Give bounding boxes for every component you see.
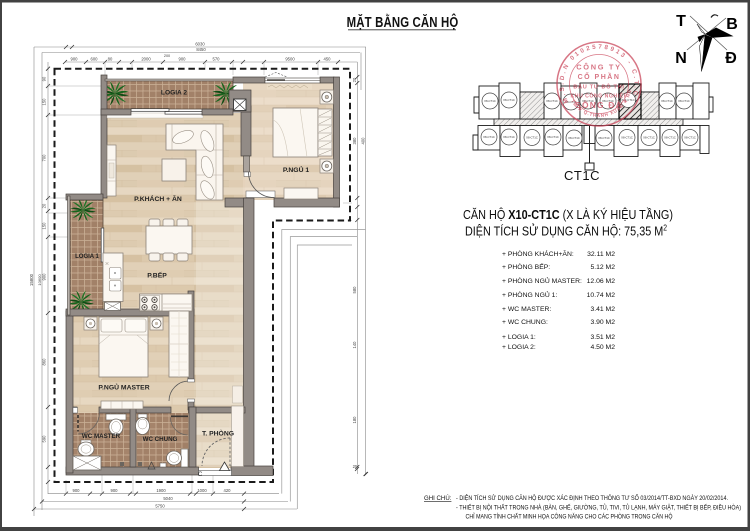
svg-text:P.NGỦ MASTER: P.NGỦ MASTER — [98, 383, 149, 392]
svg-text:X8-CT1C: X8-CT1C — [598, 136, 610, 140]
svg-text:900: 900 — [71, 57, 79, 62]
svg-text:380: 380 — [352, 137, 357, 145]
svg-text:X8-CT1C: X8-CT1C — [503, 135, 515, 139]
svg-text:- DIỆN TÍCH SỬ DỤNG CĂN HỘ ĐƯỢ: - DIỆN TÍCH SỬ DỤNG CĂN HỘ ĐƯỢC XÁC ĐỊNH… — [456, 494, 728, 502]
svg-text:8450: 8450 — [196, 47, 206, 52]
svg-text:ĐẦU TƯ ĐÔ THỊ: ĐẦU TƯ ĐÔ THỊ — [573, 83, 624, 91]
svg-text:450: 450 — [324, 57, 332, 62]
svg-text:2000: 2000 — [141, 57, 151, 62]
svg-text:P.KHÁCH + ĂN: P.KHÁCH + ĂN — [134, 194, 182, 203]
svg-text:X8-CT1C: X8-CT1C — [664, 136, 676, 140]
svg-text:900: 900 — [42, 273, 47, 281]
svg-text:T: T — [676, 13, 686, 30]
svg-text:GHI CHÚ:: GHI CHÚ: — [424, 495, 452, 502]
svg-text:P.NGỦ 1: P.NGỦ 1 — [283, 165, 310, 174]
svg-text:X8-CT1C: X8-CT1C — [684, 136, 696, 140]
svg-text:1900: 1900 — [156, 488, 166, 493]
svg-text:T. PHÒNG: T. PHÒNG — [202, 429, 234, 438]
svg-text:10.74 M2: 10.74 M2 — [587, 292, 616, 299]
svg-text:25: 25 — [353, 464, 358, 469]
svg-text:CĂN HỘ X10-CT1C (X LÀ KÝ HIỆU: CĂN HỘ X10-CT1C (X LÀ KÝ HIỆU TẦNG) — [463, 207, 673, 222]
svg-text:860: 860 — [42, 358, 47, 366]
svg-text:CHỈ MANG TÍNH CHẤT MINH HỌA CÔ: CHỈ MANG TÍNH CHẤT MINH HỌA CÔNG NĂNG CH… — [466, 514, 673, 521]
svg-text:3.51 M2: 3.51 M2 — [590, 334, 615, 341]
svg-text:X8-CT1C: X8-CT1C — [503, 98, 515, 102]
svg-text:WC MASTER: WC MASTER — [82, 433, 121, 440]
svg-text:B: B — [726, 16, 738, 33]
svg-text:900: 900 — [179, 57, 187, 62]
svg-text:LOGIA 1: LOGIA 1 — [75, 254, 99, 260]
svg-text:CÔNG TY: CÔNG TY — [576, 63, 622, 72]
svg-text:KHU CÔNG NGHIỆP: KHU CÔNG NGHIỆP — [570, 92, 627, 100]
svg-text:570: 570 — [213, 57, 221, 62]
svg-text:WC CHUNG: WC CHUNG — [143, 436, 178, 443]
svg-text:3.90 M2: 3.90 M2 — [590, 319, 615, 326]
svg-text:400: 400 — [361, 137, 366, 145]
svg-text:X8-CT1C: X8-CT1C — [484, 99, 496, 103]
svg-text:+ LOGIA 2:: + LOGIA 2: — [502, 344, 536, 351]
svg-text:DIỆN TÍCH SỬ DỤNG CĂN HỘ: 75,3: DIỆN TÍCH SỬ DỤNG CĂN HỘ: 75,35 M2 — [465, 224, 667, 239]
svg-text:X8-CT1C: X8-CT1C — [546, 99, 558, 103]
svg-text:10600: 10600 — [37, 274, 42, 286]
svg-text:900: 900 — [111, 488, 119, 493]
svg-text:5750: 5750 — [155, 504, 165, 509]
svg-text:LOGIA 2: LOGIA 2 — [161, 90, 187, 97]
svg-text:600: 600 — [91, 57, 99, 62]
svg-text:X8-CT1C: X8-CT1C — [621, 136, 633, 140]
svg-text:32.11 M2: 32.11 M2 — [587, 251, 615, 258]
svg-text:C: C — [198, 472, 203, 478]
svg-text:X8-CT1C: X8-CT1C — [643, 136, 655, 140]
svg-text:150: 150 — [42, 222, 47, 230]
svg-text:420: 420 — [224, 488, 232, 493]
svg-text:- THIẾT BỊ NỘI THẤT TRONG NHÀ: - THIẾT BỊ NỘI THẤT TRONG NHÀ (BÀN, GHẾ,… — [456, 505, 741, 512]
svg-text:80: 80 — [108, 57, 113, 62]
svg-text:+ LOGIA 1:: + LOGIA 1: — [502, 334, 536, 341]
svg-text:N: N — [675, 50, 687, 67]
svg-text:590: 590 — [42, 435, 47, 443]
svg-text:580: 580 — [352, 286, 357, 294]
svg-text:CT1C: CT1C — [564, 168, 600, 183]
svg-text:+ PHÒNG NGỦ 1:: + PHÒNG NGỦ 1: — [502, 290, 557, 299]
svg-text:90: 90 — [42, 76, 47, 81]
svg-text:X8-CT1C: X8-CT1C — [661, 99, 673, 103]
svg-text:X8-CT1C: X8-CT1C — [483, 135, 495, 139]
svg-text:180: 180 — [352, 416, 357, 424]
svg-text:Đ: Đ — [725, 50, 737, 67]
svg-text:MẶT BẰNG CĂN HỘ: MẶT BẰNG CĂN HỘ — [347, 13, 459, 30]
svg-text:SÔNG ĐÀ: SÔNG ĐÀ — [575, 99, 623, 110]
svg-text:700: 700 — [42, 154, 47, 162]
svg-text:9500: 9500 — [285, 57, 295, 62]
svg-text:12.06 M2: 12.06 M2 — [587, 278, 616, 285]
svg-text:+ PHÒNG KHÁCH+ĂN:: + PHÒNG KHÁCH+ĂN: — [502, 249, 574, 258]
svg-text:5.12 M2: 5.12 M2 — [590, 264, 615, 271]
svg-text:4.50 M2: 4.50 M2 — [590, 344, 615, 351]
svg-text:20: 20 — [352, 77, 357, 82]
svg-text:+ WC MASTER:: + WC MASTER: — [502, 306, 551, 313]
svg-text:5040: 5040 — [163, 496, 173, 501]
svg-text:15800: 15800 — [29, 273, 34, 286]
svg-text:1000: 1000 — [197, 488, 207, 493]
svg-text:X8-CT1C: X8-CT1C — [568, 136, 580, 140]
svg-text:+ WC CHUNG:: + WC CHUNG: — [502, 319, 548, 326]
svg-text:20: 20 — [42, 203, 47, 208]
svg-text:X8-CT1C: X8-CT1C — [678, 99, 690, 103]
svg-text:6030: 6030 — [195, 42, 205, 47]
svg-text:X8-CT1C: X8-CT1C — [526, 136, 538, 140]
svg-text:+ PHÒNG NGỦ MASTER:: + PHÒNG NGỦ MASTER: — [502, 276, 582, 285]
svg-text:200: 200 — [164, 54, 170, 58]
svg-text:X8-CT1C: X8-CT1C — [547, 135, 559, 139]
svg-text:140: 140 — [352, 341, 357, 349]
svg-text:150: 150 — [42, 98, 47, 106]
svg-text:900: 900 — [73, 488, 81, 493]
svg-text:3.41 M2: 3.41 M2 — [590, 306, 615, 313]
